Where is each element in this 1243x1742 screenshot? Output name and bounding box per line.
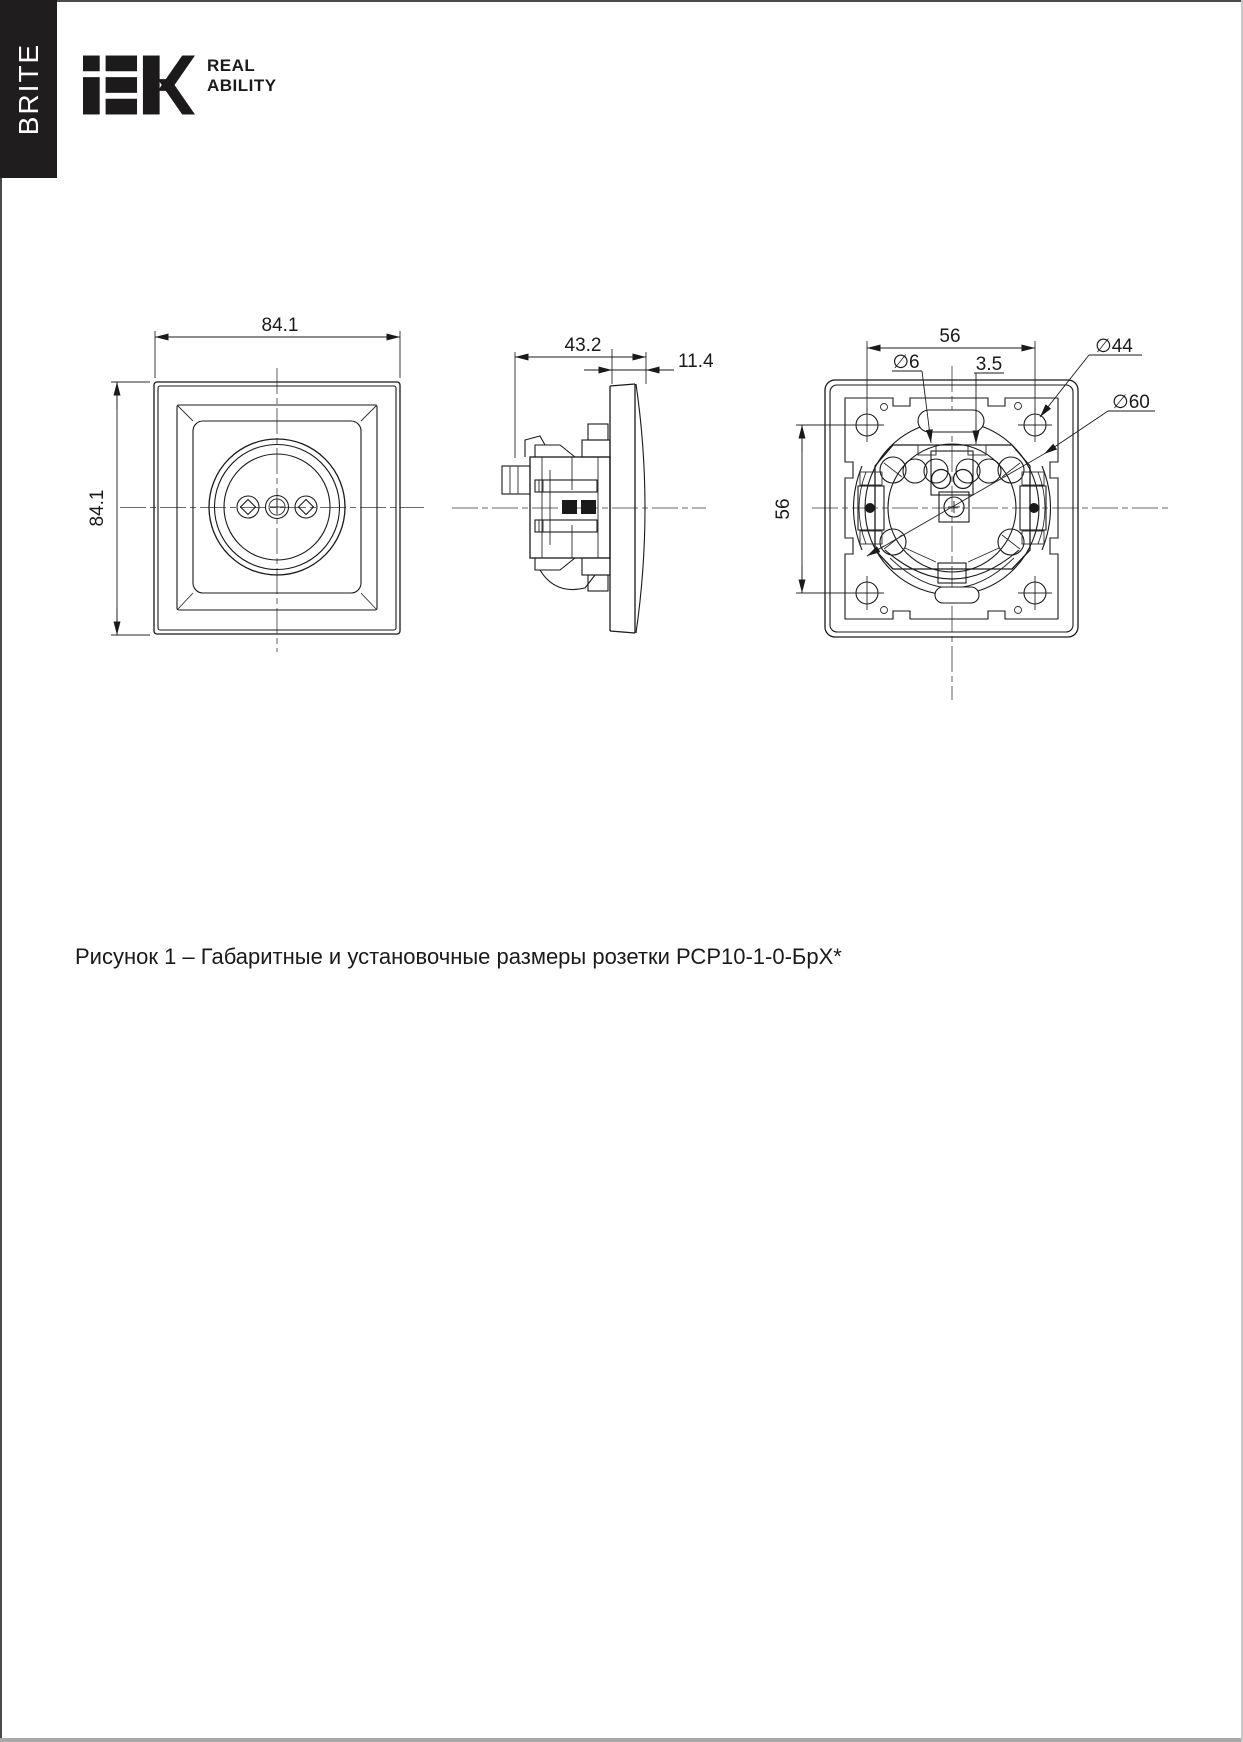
side-depth-dimension: 43.2	[515, 335, 646, 458]
dimension-drawing: 84.1 84.1	[0, 280, 1243, 720]
series-label: BRITE	[0, 0, 57, 178]
mounting-holes	[850, 408, 1052, 610]
back-gap-label: 3.5	[976, 354, 1002, 375]
back-spacing-h-label: 56	[939, 326, 960, 347]
center-screw	[266, 496, 289, 519]
page-border-bottom	[0, 1738, 1243, 1742]
side-thickness-dimension: 11.4	[584, 349, 714, 384]
series-tab: BRITE	[0, 0, 57, 178]
logo-tagline-line1: REAL	[207, 56, 277, 76]
page-border-left	[0, 0, 2, 1742]
front-width-label: 84.1	[262, 315, 299, 336]
back-spacing-v-label: 56	[773, 498, 794, 519]
front-view-drawing: 84.1 84.1	[87, 315, 424, 652]
page-border-top	[0, 0, 1243, 2]
figure-caption: Рисунок 1 – Габаритные и установочные ра…	[75, 944, 1075, 970]
back-spacing-v-dimension: 56	[773, 425, 850, 593]
logo-tagline: REAL ABILITY	[207, 56, 277, 96]
back-hole-diameter-label: ∅6	[892, 352, 919, 373]
socket-pin-hole-left	[237, 496, 259, 518]
front-height-dimension: 84.1	[87, 382, 150, 635]
back-d60-label: ∅60	[1112, 392, 1150, 413]
front-width-dimension: 84.1	[155, 315, 400, 378]
front-height-label: 84.1	[87, 490, 108, 527]
iek-logo-icon	[83, 55, 195, 115]
back-d44-label: ∅44	[1095, 336, 1133, 357]
back-view-drawing: 56 56 ∅6 3.5	[773, 326, 1168, 700]
center-fixing-screw	[939, 492, 969, 522]
logo-tagline-line2: ABILITY	[207, 76, 277, 96]
datasheet-page: BRITE REAL ABILITY	[0, 0, 1243, 1742]
side-depth-label: 43.2	[565, 335, 602, 356]
side-thickness-label: 11.4	[678, 351, 714, 372]
socket-pin-hole-right	[295, 496, 317, 518]
side-view-drawing: 43.2 11.4	[452, 335, 714, 633]
